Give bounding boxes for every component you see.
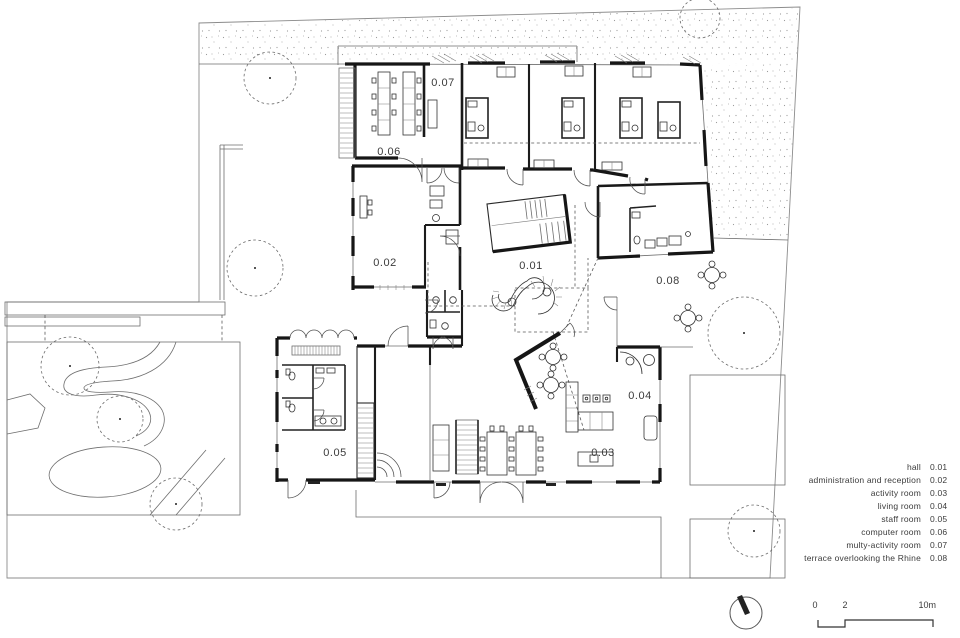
- serpentine-bench: [492, 276, 562, 314]
- threshold: [436, 483, 446, 486]
- legend-code: 0.05: [930, 513, 953, 526]
- legend-name: activity room: [871, 488, 921, 498]
- legend-name: hall: [907, 462, 921, 472]
- legend-name: terrace overlooking the Rhine: [804, 553, 921, 563]
- legend-code: 0.04: [930, 500, 953, 513]
- room-label-multi-activity: 0.07: [431, 77, 454, 89]
- scale-bar: [818, 620, 933, 627]
- wardrobe: [433, 425, 449, 471]
- south-staircase: [357, 403, 401, 478]
- room-label-living-room: 0.04: [628, 390, 651, 402]
- legend-row: activity room0.03: [804, 487, 953, 500]
- threshold: [308, 481, 320, 484]
- garden-platform: [7, 394, 45, 434]
- legend-code: 0.07: [930, 539, 953, 552]
- legend-row: administration and reception0.02: [804, 474, 953, 487]
- room-label-activity-room: 0.03: [591, 447, 614, 459]
- legend-name: computer room: [861, 527, 921, 537]
- legend-row: living room0.04: [804, 500, 953, 513]
- room-label-terrace: 0.08: [656, 275, 679, 287]
- site-boundary: [7, 7, 800, 578]
- legend-row: terrace overlooking the Rhine0.08: [804, 552, 953, 565]
- planting-bed-upper: [690, 375, 785, 485]
- round-table: [698, 261, 726, 289]
- floor-plan: 0.01 0.02 0.03 0.04 0.05 0.06 0.07 0.08 …: [0, 0, 960, 638]
- round-table: [674, 304, 702, 332]
- north-arrow: [730, 595, 762, 629]
- scale-label-start: 0: [812, 600, 817, 610]
- room-label-administration: 0.02: [373, 257, 396, 269]
- round-table: [537, 371, 565, 399]
- legend-code: 0.02: [930, 474, 953, 487]
- rooms-block: [462, 63, 713, 330]
- room-furniture: [468, 66, 651, 170]
- room-label-staff-room: 0.05: [323, 447, 346, 459]
- path-band: [5, 302, 225, 315]
- legend-code: 0.03: [930, 487, 953, 500]
- south-path-edge: [356, 490, 661, 578]
- scale-label-end: 10m: [918, 600, 936, 610]
- legend-name: administration and reception: [809, 475, 921, 485]
- garden-area: [7, 315, 240, 515]
- sand-pit: [47, 443, 162, 501]
- entry-steps: [456, 420, 478, 474]
- legend-row: hall0.01: [804, 461, 953, 474]
- legend-row: multy-activity room0.07: [804, 539, 953, 552]
- legend: hall0.01 administration and reception0.0…: [804, 461, 953, 565]
- legend-name: staff room: [881, 514, 921, 524]
- legend-row: staff room0.05: [804, 513, 953, 526]
- fence-wall: [220, 145, 243, 300]
- east-room-interior: [630, 206, 691, 252]
- admin-furniture: [360, 186, 458, 244]
- computer-desks: [372, 72, 421, 135]
- threshold: [546, 483, 556, 486]
- administration-walls: [352, 166, 462, 290]
- round-table: [539, 343, 567, 371]
- building: [277, 46, 713, 578]
- bathroom-cells: [466, 98, 680, 138]
- dining-tables: [480, 426, 543, 475]
- legend-name: multy-activity room: [846, 540, 921, 550]
- main-staircase: [487, 194, 570, 251]
- sofa: [644, 416, 657, 440]
- gravel-ground: [5, 8, 799, 578]
- garden-path: [64, 342, 160, 436]
- legend-code: 0.06: [930, 526, 953, 539]
- scale-label-mid: 2: [842, 600, 847, 610]
- legend-code: 0.01: [930, 461, 953, 474]
- room-label-hall: 0.01: [519, 260, 542, 272]
- shelf: [428, 100, 437, 128]
- legend-code: 0.08: [930, 552, 953, 565]
- gravel-right-area: [703, 64, 797, 240]
- staff-wing: [277, 326, 462, 498]
- north-needle: [737, 595, 750, 615]
- room-label-computer-room: 0.06: [377, 146, 400, 158]
- legend-name: living room: [878, 501, 921, 511]
- path-band-2: [5, 317, 140, 326]
- legend-row: computer room0.06: [804, 526, 953, 539]
